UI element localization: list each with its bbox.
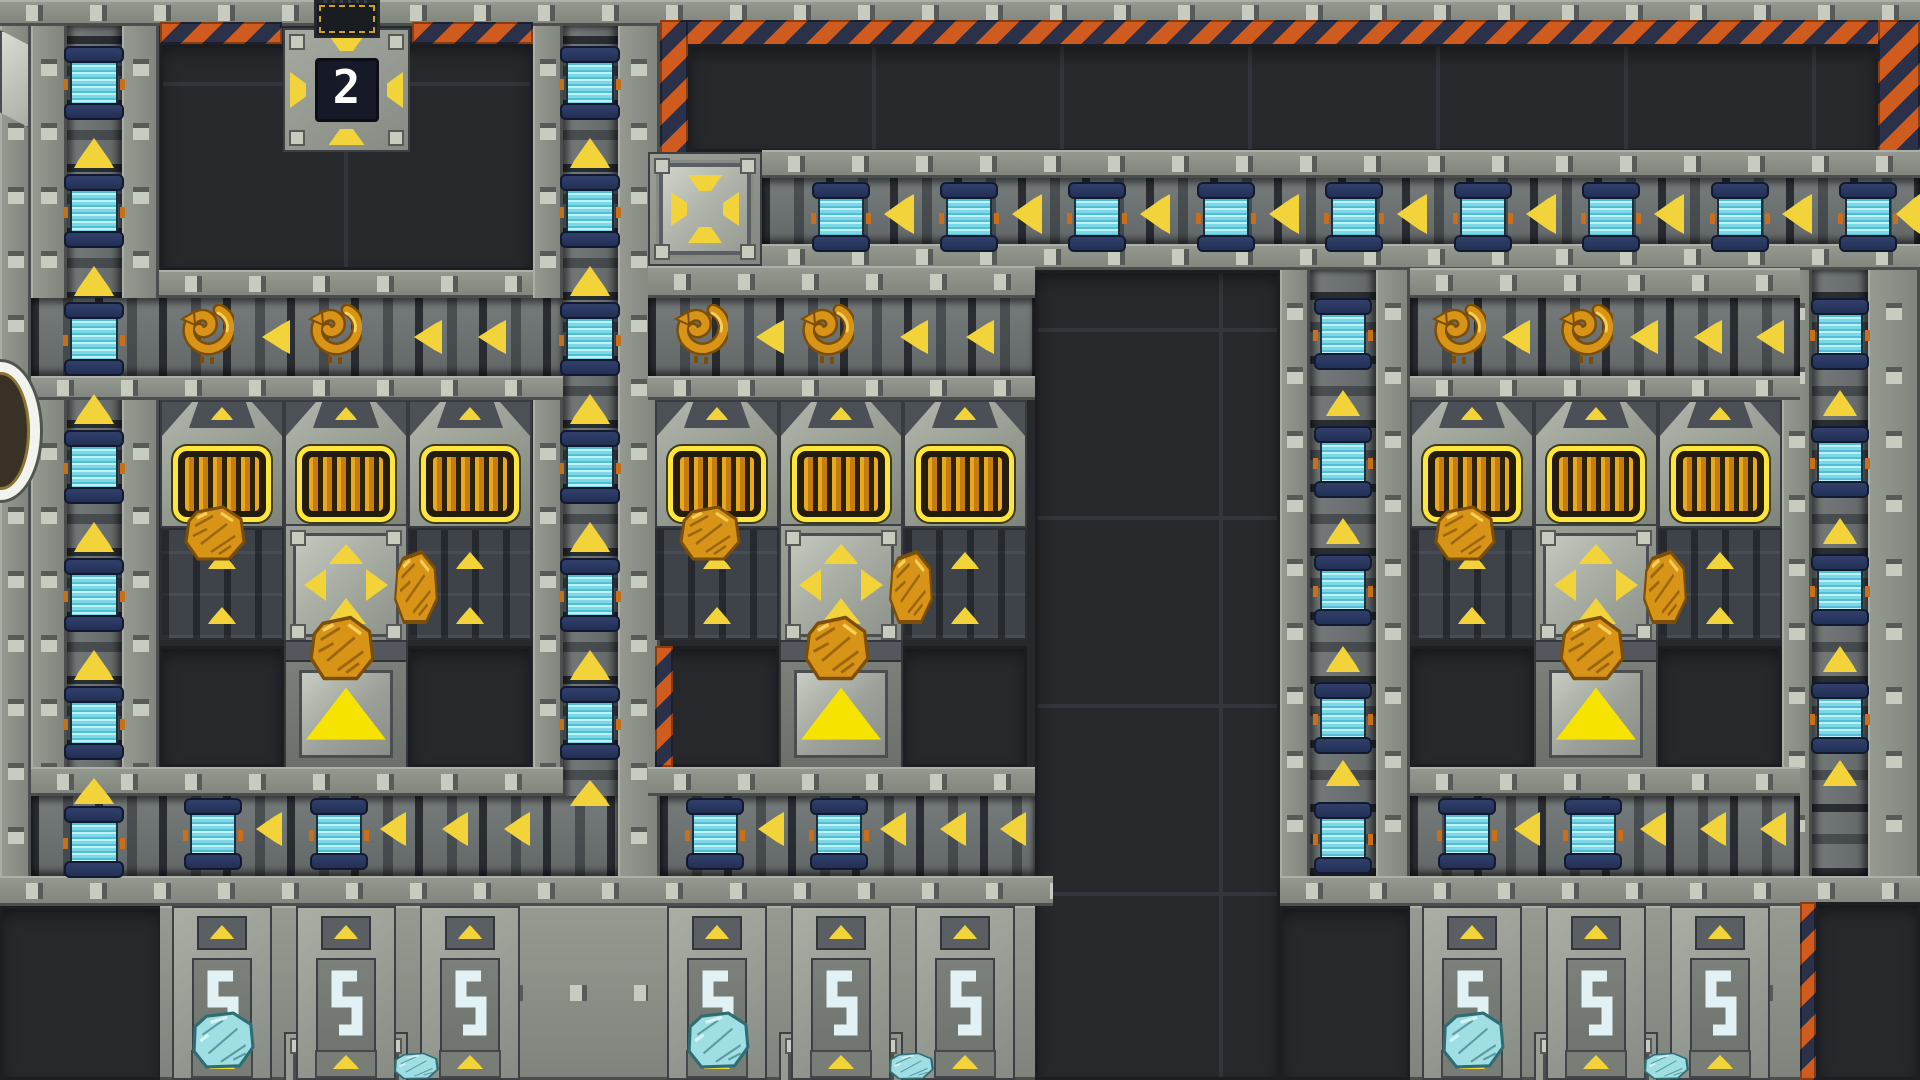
arrow-up-icon — [456, 552, 484, 569]
spool-clip — [1810, 458, 1815, 469]
bolt-icon — [1540, 624, 1556, 640]
spinner-machine[interactable] — [296, 906, 396, 1080]
gold-creature-icon — [672, 304, 728, 366]
spool-clip — [364, 830, 369, 841]
spool-clip — [866, 213, 871, 224]
spool-clip — [685, 830, 690, 841]
input-chute — [934, 1050, 996, 1078]
spool-item[interactable] — [64, 430, 124, 504]
pit — [160, 646, 284, 767]
metal-frame — [1280, 270, 1310, 906]
spool-cap — [560, 743, 620, 760]
spool-clip — [120, 207, 125, 218]
pit — [408, 646, 532, 767]
arrow-up-icon — [459, 407, 481, 420]
metal-frame — [1410, 767, 1800, 796]
spool-cap — [1314, 682, 1372, 699]
spool-cap — [1325, 182, 1383, 199]
arrow-left-icon — [304, 569, 326, 601]
metal-frame — [648, 376, 1035, 400]
corner-chute — [376, 402, 406, 436]
spool-cap — [1811, 554, 1869, 571]
thread-glyph-icon — [1698, 964, 1742, 1062]
spool-item[interactable] — [1314, 802, 1372, 874]
pit — [1035, 270, 1280, 1080]
spool-thread — [566, 440, 614, 494]
metal-frame — [762, 150, 1920, 178]
spool-clip — [616, 207, 621, 218]
arrow-up-icon — [1583, 1055, 1609, 1069]
spool-clip — [120, 79, 125, 90]
crystal-ore-item[interactable] — [685, 1010, 751, 1070]
crate-slot — [297, 446, 395, 522]
spool-clip — [1865, 586, 1870, 597]
bolt-icon — [881, 624, 897, 640]
metal-frame — [159, 270, 533, 298]
crystal-ore-icon — [1440, 1010, 1506, 1070]
gold-bars — [185, 457, 259, 511]
spool-clip — [63, 463, 68, 474]
spool-cap — [1811, 426, 1869, 443]
spool-item[interactable] — [812, 182, 870, 252]
spool-clip — [1122, 213, 1127, 224]
arrow-up-icon — [333, 1055, 359, 1069]
spool-clip — [616, 463, 621, 474]
spool-cap — [1314, 353, 1372, 370]
spool-item[interactable] — [1582, 182, 1640, 252]
bolt-icon — [386, 530, 402, 546]
output-chute — [1447, 916, 1497, 950]
arrow-up-icon — [824, 544, 858, 564]
gold-nugget-item[interactable] — [1558, 614, 1626, 682]
spool-thread — [70, 56, 118, 110]
corner-chute — [410, 402, 440, 436]
gold-nugget-icon — [678, 504, 742, 562]
spool-cap — [64, 487, 124, 504]
arrow-up-icon — [954, 407, 976, 420]
gold-creature-icon — [178, 304, 234, 366]
corner-chute — [781, 402, 811, 436]
corner-chute — [1502, 402, 1532, 436]
spool-cap — [1314, 298, 1372, 315]
spool-clip — [559, 463, 564, 474]
arrow-up-icon — [1706, 607, 1734, 624]
crate-machine[interactable] — [903, 400, 1027, 528]
output-chute — [684, 402, 750, 428]
spool-cap — [310, 798, 368, 815]
hazard-stripes — [655, 646, 673, 767]
arrow-left-icon — [799, 569, 821, 601]
spool-item[interactable] — [1314, 554, 1372, 626]
hazard-stripes — [412, 22, 533, 44]
arrow-right-icon — [861, 569, 883, 601]
gold-nugget-item[interactable] — [803, 614, 871, 682]
spool-cap — [184, 798, 242, 815]
counter-value: 2 — [315, 58, 379, 122]
spool-item[interactable] — [1811, 298, 1869, 370]
output-chute — [940, 916, 990, 950]
hazard-stripes — [1878, 20, 1920, 154]
bolt-icon — [290, 530, 306, 546]
spool-cap — [560, 615, 620, 632]
bolt-icon — [289, 34, 305, 50]
spool-cap — [1068, 182, 1126, 199]
gold-nugget-item[interactable] — [183, 504, 247, 562]
spool-clip — [559, 207, 564, 218]
spool-thread — [70, 568, 118, 622]
crate-machine[interactable] — [408, 400, 532, 528]
spool-cap — [1314, 609, 1372, 626]
spool-cap — [560, 359, 620, 376]
output-chute — [808, 402, 874, 428]
spool-thread — [566, 696, 614, 750]
spool-item[interactable] — [810, 798, 868, 870]
arrow-up-icon — [210, 925, 234, 939]
spool-item[interactable] — [64, 46, 124, 120]
bolt-icon — [388, 130, 404, 146]
spool-cap — [940, 235, 998, 252]
spool-cap — [1438, 798, 1496, 815]
collector-panel — [659, 163, 751, 255]
corner-chute — [1750, 402, 1780, 436]
spool-item[interactable] — [1314, 298, 1372, 370]
bolt-icon — [654, 158, 670, 174]
output-chute — [1695, 916, 1745, 950]
bolt-icon — [386, 624, 402, 640]
spool-item[interactable] — [64, 806, 124, 878]
spool-cap — [1325, 235, 1383, 252]
crystal-ore-icon — [392, 1052, 440, 1080]
game-viewport: 2 — [0, 0, 1920, 1080]
metal-frame — [31, 376, 563, 400]
spool-clip — [183, 830, 188, 841]
gold-creature-item[interactable] — [798, 304, 854, 366]
spool-item[interactable] — [1454, 182, 1512, 252]
crate-slot — [792, 446, 890, 522]
spool-cap — [1438, 853, 1496, 870]
input-chute — [439, 1050, 501, 1078]
output-chute — [1687, 402, 1753, 428]
chip-legs — [324, 0, 370, 3]
metal-frame — [0, 876, 1053, 906]
spinner-machine[interactable] — [1546, 906, 1646, 1080]
gold-nugget-item[interactable] — [393, 548, 439, 626]
spool-cap — [1314, 737, 1372, 754]
spool-thread — [70, 696, 118, 750]
spool-cap — [812, 235, 870, 252]
spool-item[interactable] — [560, 686, 620, 760]
arrow-up-icon — [1706, 552, 1734, 569]
hazard-stripes — [1800, 902, 1816, 1080]
spool-cap — [1839, 182, 1897, 199]
corner-chute — [162, 402, 192, 436]
crystal-ore-item[interactable] — [1440, 1010, 1506, 1070]
spool-clip — [63, 79, 68, 90]
gold-nugget-icon — [393, 548, 439, 626]
arrow-up-icon — [456, 607, 484, 624]
spool-cap — [1068, 235, 1126, 252]
gold-nugget-item[interactable] — [1433, 504, 1497, 562]
chip-pins — [319, 5, 375, 33]
bolt-icon — [1540, 530, 1556, 546]
spool-clip — [63, 207, 68, 218]
spool-cap — [1582, 235, 1640, 252]
gold-nugget-item[interactable] — [308, 614, 376, 682]
bolt-icon — [1636, 624, 1652, 640]
crystal-ore-item[interactable] — [1642, 1052, 1690, 1080]
crate-machine[interactable] — [779, 400, 903, 528]
counter-tile[interactable]: 2 — [283, 28, 410, 152]
arrow-up-icon — [1707, 1055, 1733, 1069]
crate-slot — [1671, 446, 1769, 522]
spool-clip — [120, 463, 125, 474]
spool-item[interactable] — [64, 302, 124, 376]
spool-cap — [686, 798, 744, 815]
crate-slot — [1547, 446, 1645, 522]
corner-chute — [1626, 402, 1656, 436]
arrow-right-icon — [1616, 569, 1638, 601]
spool-item[interactable] — [1811, 426, 1869, 498]
metal-frame — [648, 266, 1035, 298]
arrow-up-icon — [830, 407, 852, 420]
crystal-ore-item[interactable] — [887, 1052, 935, 1080]
arrow-up-icon — [703, 607, 731, 624]
spool-clip — [559, 335, 564, 346]
spool-item[interactable] — [1711, 182, 1769, 252]
gold-nugget-icon — [183, 504, 247, 562]
corner-chute — [1536, 402, 1566, 436]
spool-cap — [64, 103, 124, 120]
spool-clip — [1368, 714, 1373, 725]
spool-clip — [1251, 213, 1256, 224]
crystal-ore-icon — [1642, 1052, 1690, 1080]
spool-cap — [64, 806, 124, 823]
corner-chute — [657, 402, 687, 436]
output-chute — [1563, 402, 1629, 428]
spool-clip — [309, 830, 314, 841]
spool-clip — [1313, 330, 1318, 341]
spool-cap — [560, 558, 620, 575]
arrow-up-icon — [688, 227, 722, 243]
gold-bars — [804, 457, 878, 511]
spool-item[interactable] — [64, 174, 124, 248]
gold-nugget-item[interactable] — [888, 548, 934, 626]
thread-glyph-icon — [324, 964, 368, 1062]
spool-cap — [64, 558, 124, 575]
spool-clip — [1368, 834, 1373, 845]
spool-cap — [1197, 182, 1255, 199]
spool-clip — [559, 79, 564, 90]
pit — [1816, 902, 1920, 1080]
gold-bars — [1683, 457, 1757, 511]
spool-item[interactable] — [560, 430, 620, 504]
metal-frame — [533, 26, 563, 876]
spool-cap — [560, 103, 620, 120]
bolt-icon — [785, 530, 801, 546]
spool-clip — [63, 335, 68, 346]
arrow-down-icon — [688, 175, 722, 191]
crate-machine[interactable] — [284, 400, 408, 528]
spool-item[interactable] — [560, 174, 620, 248]
gold-nugget-icon — [1642, 548, 1688, 626]
crystal-ore-item[interactable] — [190, 1010, 256, 1070]
bolt-icon — [740, 244, 756, 260]
metal-frame — [31, 767, 563, 796]
arrow-up-icon — [1585, 407, 1607, 420]
spool-clip — [1453, 213, 1458, 224]
spool-item[interactable] — [1314, 426, 1372, 498]
spool-item[interactable] — [940, 182, 998, 252]
spool-clip — [939, 213, 944, 224]
spool-item[interactable] — [686, 798, 744, 870]
spool-item[interactable] — [184, 798, 242, 870]
arrow-up-icon — [335, 407, 357, 420]
gold-bars — [680, 457, 754, 511]
spool-cap — [1314, 426, 1372, 443]
gold-nugget-icon — [803, 614, 871, 682]
spool-item[interactable] — [1314, 682, 1372, 754]
output-chute — [1439, 402, 1505, 428]
spool-item[interactable] — [560, 302, 620, 376]
pit — [0, 906, 162, 1080]
spinner-machine[interactable] — [791, 906, 891, 1080]
spool-clip — [120, 838, 125, 849]
spool-item[interactable] — [64, 558, 124, 632]
pit — [1658, 646, 1782, 767]
arrow-up-icon — [1709, 407, 1731, 420]
spool-cap — [812, 182, 870, 199]
spool-item[interactable] — [1068, 182, 1126, 252]
spool-item[interactable] — [560, 558, 620, 632]
spool-cap — [1811, 481, 1869, 498]
crystal-ore-icon — [887, 1052, 935, 1080]
spool-cap — [64, 302, 124, 319]
spool-item[interactable] — [310, 798, 368, 870]
spool-clip — [559, 719, 564, 730]
arrow-up-icon — [1461, 407, 1483, 420]
spool-cap — [1314, 802, 1372, 819]
metal-frame — [1410, 376, 1800, 400]
gold-nugget-item[interactable] — [678, 504, 742, 562]
arrow-left-icon — [1554, 569, 1576, 601]
spool-clip — [994, 213, 999, 224]
corner-chute — [747, 402, 777, 436]
gold-bars — [1435, 457, 1509, 511]
pit — [903, 646, 1027, 767]
spool-cap — [1582, 182, 1640, 199]
gold-creature-item[interactable] — [1430, 304, 1486, 366]
spool-clip — [1313, 458, 1318, 469]
gold-creature-item[interactable] — [306, 304, 362, 366]
metal-frame — [122, 26, 159, 876]
spool-clip — [559, 591, 564, 602]
spool-clip — [1810, 714, 1815, 725]
crate-machine[interactable] — [1658, 400, 1782, 528]
spool-item[interactable] — [1811, 554, 1869, 626]
spool-clip — [63, 838, 68, 849]
spool-cap — [64, 686, 124, 703]
spool-cap — [310, 853, 368, 870]
gold-bars — [309, 457, 383, 511]
crystal-ore-item[interactable] — [392, 1052, 440, 1080]
spool-cap — [560, 231, 620, 248]
spool-clip — [1865, 714, 1870, 725]
arrow-up-icon — [1708, 925, 1732, 939]
input-chute — [1565, 1050, 1627, 1078]
gold-creature-icon — [1557, 304, 1613, 366]
arrow-up-icon — [952, 1055, 978, 1069]
spool-item[interactable] — [560, 46, 620, 120]
crate-slot — [421, 446, 519, 522]
gold-bars — [1559, 457, 1633, 511]
arrow-up-icon — [705, 925, 729, 939]
arrow-left-icon — [387, 72, 403, 108]
arrow-right-icon — [366, 569, 388, 601]
gold-nugget-item[interactable] — [1642, 548, 1688, 626]
gold-nugget-icon — [888, 548, 934, 626]
spool-clip — [616, 335, 621, 346]
spool-clip — [616, 591, 621, 602]
output-chute — [437, 402, 503, 428]
chip-module[interactable] — [314, 0, 380, 38]
spool-clip — [1313, 586, 1318, 597]
spool-clip — [120, 335, 125, 346]
corner-chute — [995, 402, 1025, 436]
output-chute — [313, 402, 379, 428]
arrow-up-icon — [829, 925, 853, 939]
hazard-stripes — [660, 20, 1880, 46]
spool-item[interactable] — [1839, 182, 1897, 252]
spool-clip — [1313, 714, 1318, 725]
bolt-icon — [785, 624, 801, 640]
arrow-up-icon — [457, 1055, 483, 1069]
spool-cap — [1811, 737, 1869, 754]
gold-creature-item[interactable] — [672, 304, 728, 366]
input-chute — [810, 1050, 872, 1078]
gold-creature-item[interactable] — [1557, 304, 1613, 366]
arrow-up-icon — [951, 552, 979, 569]
spool-cap — [560, 430, 620, 447]
arrow-left-icon — [723, 192, 739, 226]
input-chute — [315, 1050, 377, 1078]
spool-cap — [64, 743, 124, 760]
crate-machine[interactable] — [1534, 400, 1658, 528]
arrow-up-icon — [706, 407, 728, 420]
spool-clip — [1563, 830, 1568, 841]
output-chute — [816, 916, 866, 950]
arrow-up-icon — [329, 544, 363, 564]
bolt-icon — [388, 34, 404, 50]
thread-glyph-icon — [943, 964, 987, 1062]
metal-frame — [1376, 270, 1410, 906]
spool-cap — [560, 46, 620, 63]
spool-item[interactable] — [1325, 182, 1383, 252]
spool-item[interactable] — [1564, 798, 1622, 870]
spool-cap — [64, 174, 124, 191]
gold-creature-item[interactable] — [178, 304, 234, 366]
spool-clip — [1810, 586, 1815, 597]
spool-item[interactable] — [64, 686, 124, 760]
spool-clip — [1067, 213, 1072, 224]
spool-item[interactable] — [1811, 682, 1869, 754]
spool-item[interactable] — [1197, 182, 1255, 252]
collector-machine[interactable] — [648, 152, 762, 266]
spool-clip — [1196, 213, 1201, 224]
gold-nugget-icon — [308, 614, 376, 682]
spool-item[interactable] — [1438, 798, 1496, 870]
spool-clip — [1765, 213, 1770, 224]
spool-cap — [940, 182, 998, 199]
